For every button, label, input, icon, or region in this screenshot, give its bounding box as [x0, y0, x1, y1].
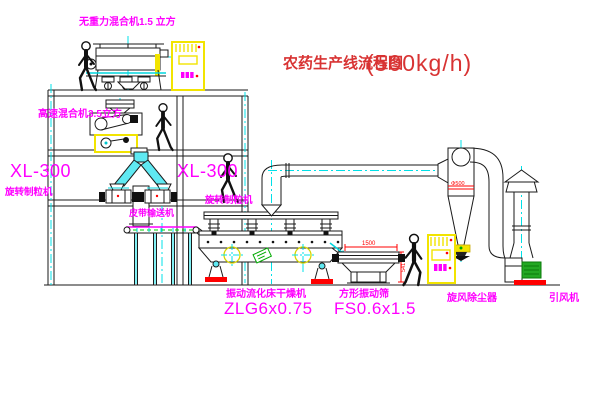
label-gravity-mixer: 无重力混合机1.5 立方	[78, 15, 176, 28]
person-figure	[156, 104, 172, 150]
y-feed-duct	[113, 152, 169, 186]
vibrating-sieve	[332, 244, 405, 283]
person-figure	[404, 234, 422, 285]
fluid-bed-dryer	[199, 212, 353, 284]
label-granulator-left-name: 旋转制粒机	[4, 186, 53, 198]
dim-sieve-height: 541	[401, 263, 407, 272]
exhaust-duct	[262, 163, 440, 216]
label-granulator-left-model: XL-300	[10, 161, 71, 181]
label-cyclone: 旋风除尘器	[446, 291, 498, 304]
gravity-free-mixer	[86, 44, 168, 90]
label-granulator-right-model: XL-300	[177, 161, 238, 181]
stack-and-fan	[505, 170, 546, 285]
control-cabinet-top	[172, 42, 204, 90]
belt-conveyor	[124, 227, 209, 285]
label-dryer-model: ZLG6x0.75	[224, 299, 313, 318]
dim-sieve-length: 1500	[362, 241, 376, 247]
label-sieve-model: FS0.6x1.5	[334, 299, 416, 318]
label-granulator-right-name: 旋转制粒机	[204, 194, 253, 206]
label-high-speed-mixer: 高速混合机3.5立方	[38, 107, 122, 120]
dim-cyclone-diameter: Φ500	[451, 181, 465, 187]
title-capacity: (500kg/h)	[366, 50, 472, 76]
label-belt-conveyor: 皮带输送机	[128, 207, 174, 218]
control-cabinet-ground	[428, 235, 455, 283]
granulator-left	[99, 184, 138, 203]
diagram-title: 农药生产线流程图 (500kg/h)	[282, 50, 472, 76]
label-fan: 引风机	[549, 291, 579, 304]
flow-diagram-canvas: 农药生产线流程图 (500kg/h) 无重力混合机1.5 立方 高速混合机3.5…	[0, 0, 600, 403]
